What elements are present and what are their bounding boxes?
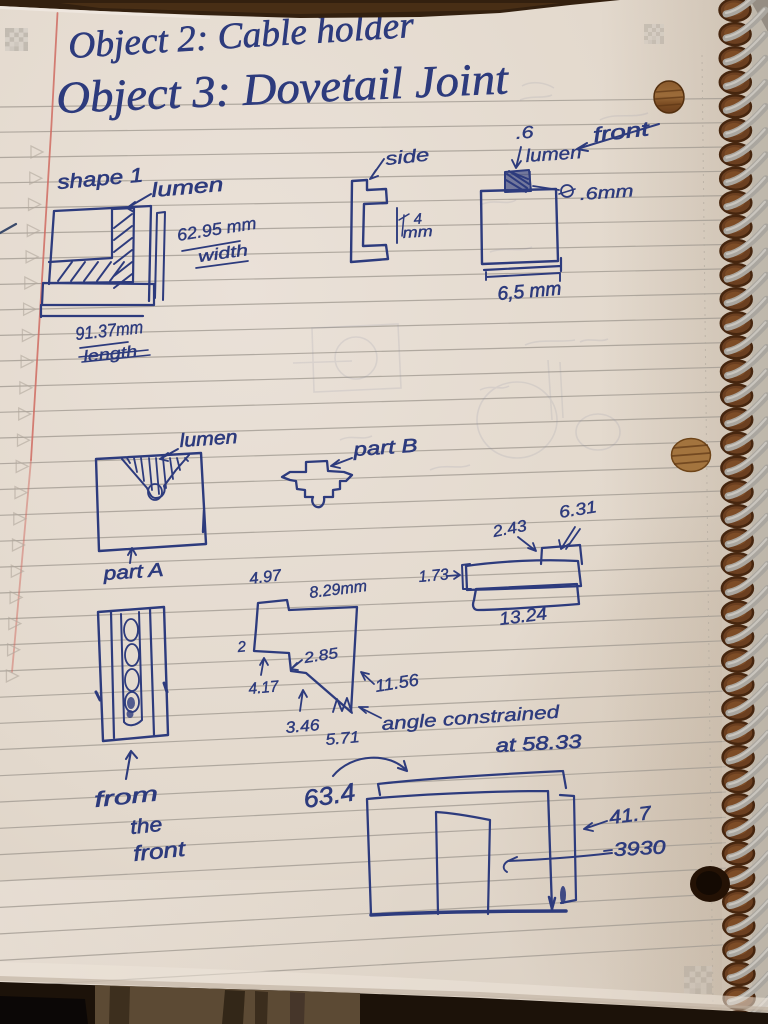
svg-text:3.46: 3.46 xyxy=(285,717,320,737)
svg-text:3930: 3930 xyxy=(613,837,667,861)
svg-text:lumen: lumen xyxy=(179,427,238,452)
svg-text:.6mm: .6mm xyxy=(579,181,634,204)
svg-text:5.71: 5.71 xyxy=(325,729,360,749)
svg-text:the: the xyxy=(129,814,163,839)
svg-text:lumen: lumen xyxy=(525,142,582,166)
svg-text:.6: .6 xyxy=(515,122,535,143)
svg-text:mm: mm xyxy=(402,223,433,242)
svg-text:1.73: 1.73 xyxy=(418,566,449,586)
svg-text:part A: part A xyxy=(102,560,165,585)
svg-text:4.17: 4.17 xyxy=(248,678,280,698)
